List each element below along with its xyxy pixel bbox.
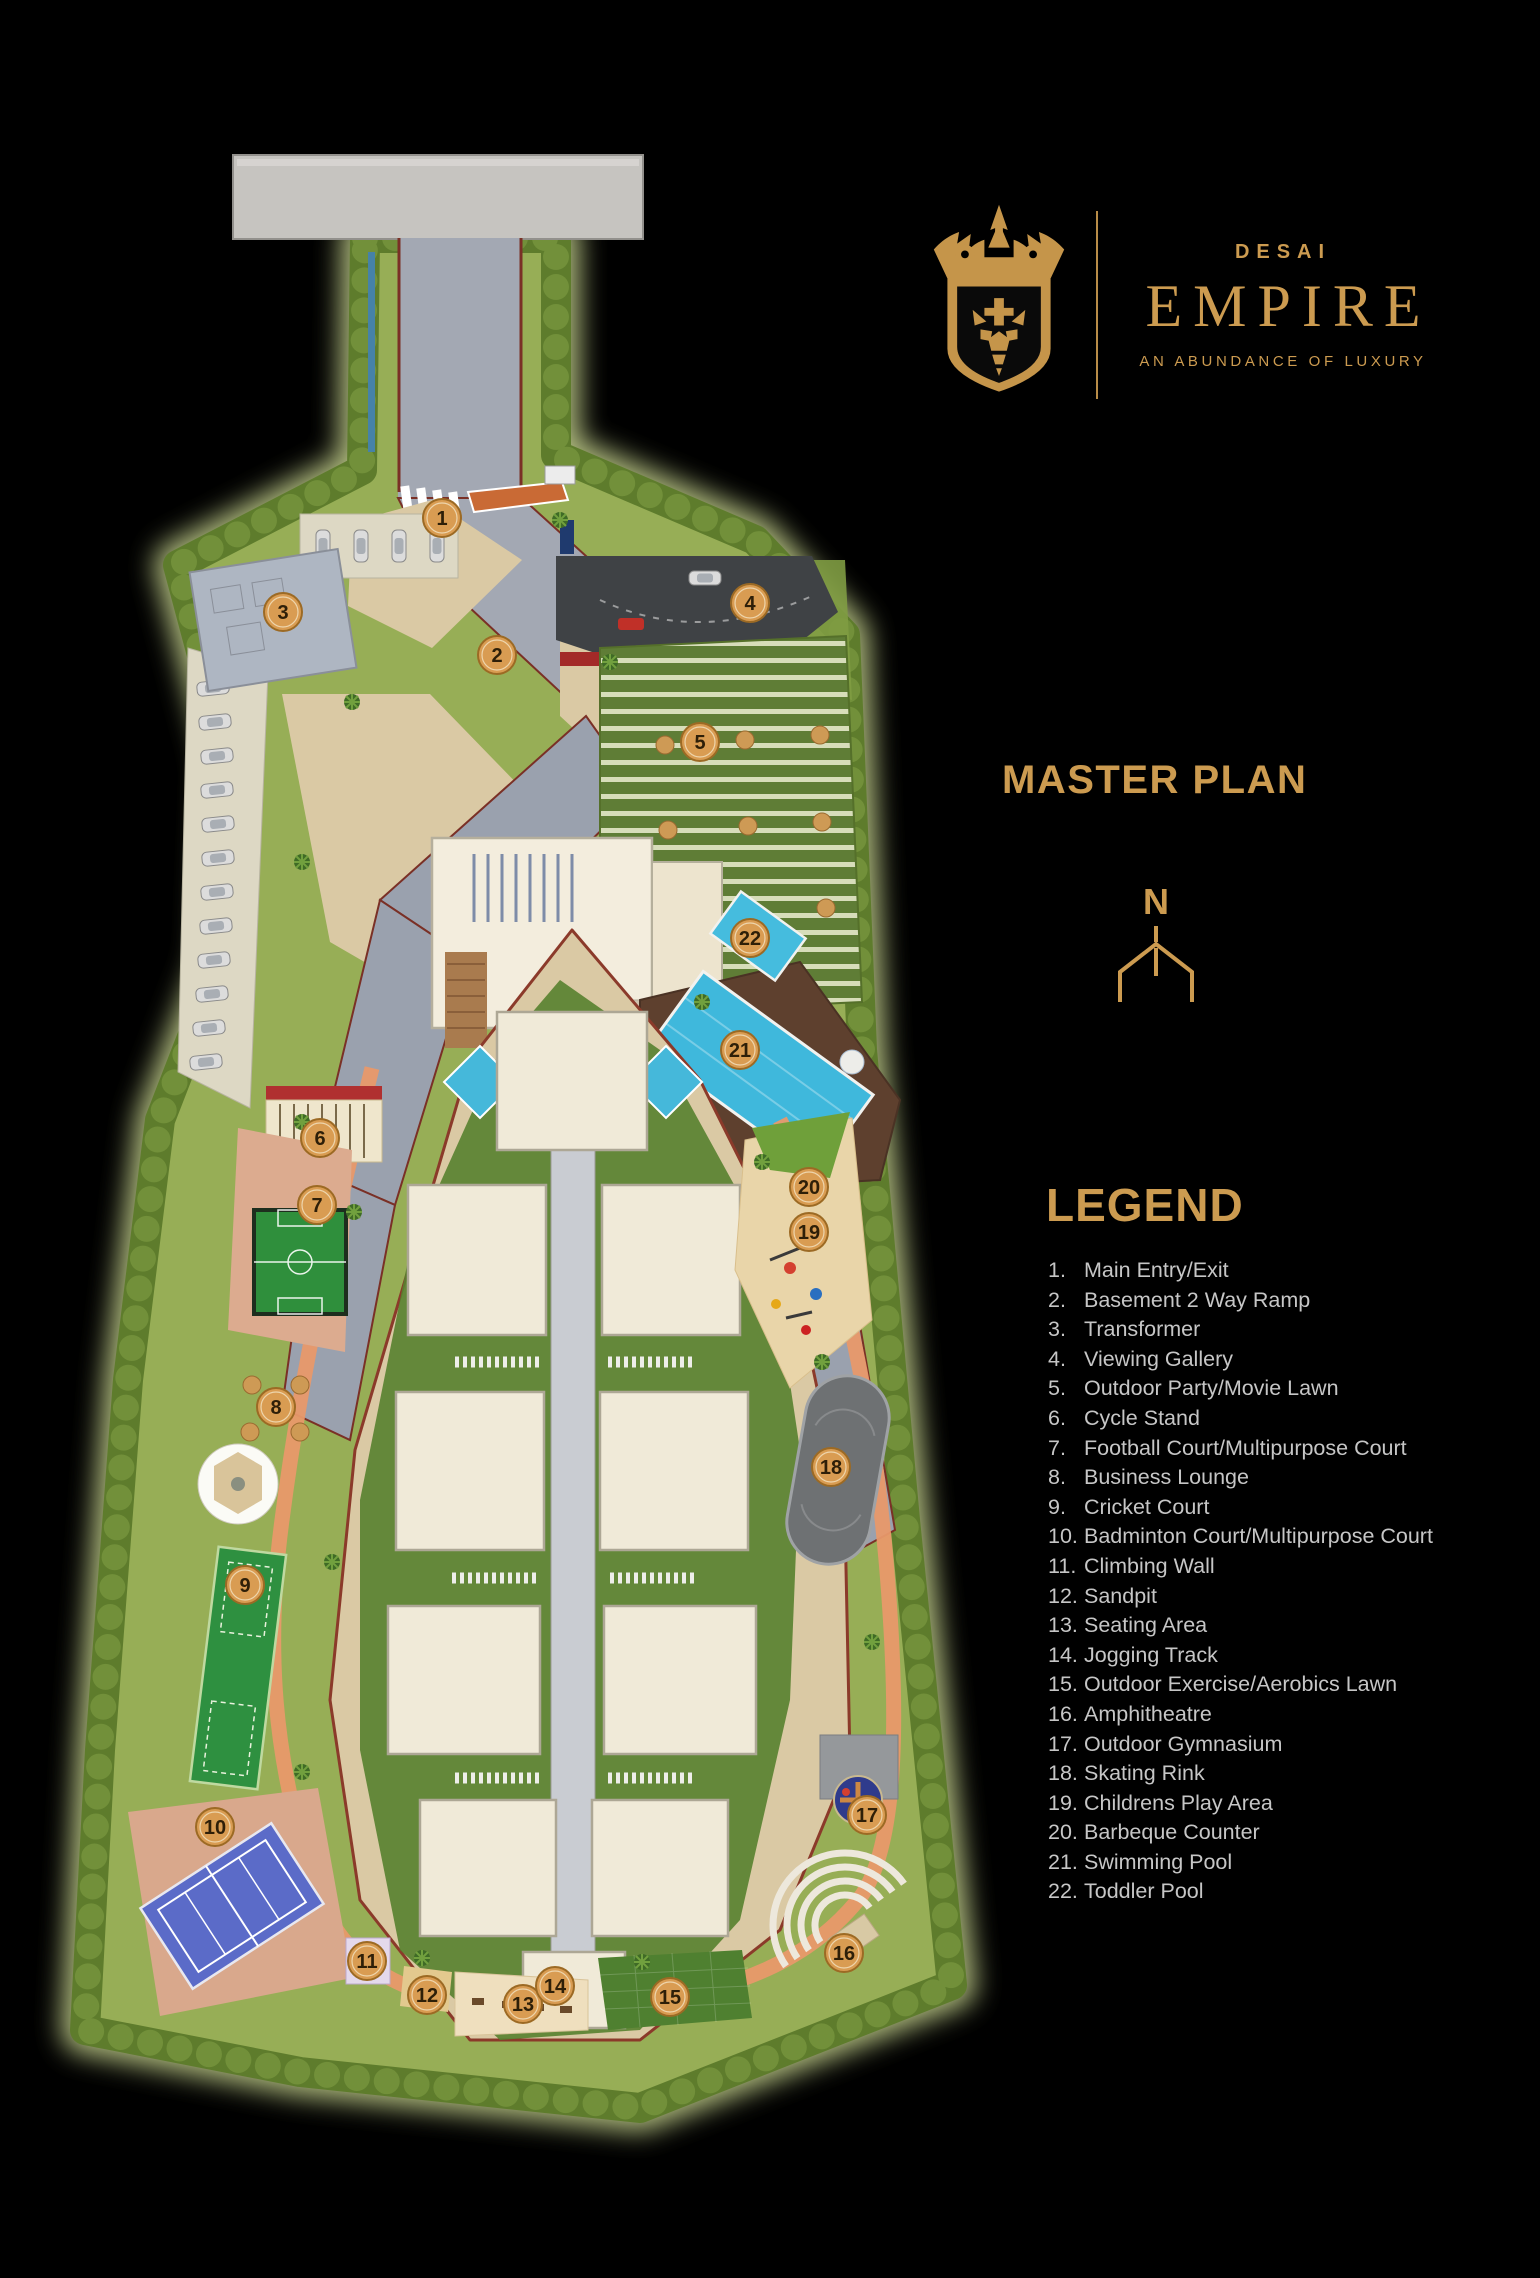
legend-item: 12.Sandpit [1048, 1582, 1516, 1612]
football-court [228, 1128, 352, 1352]
legend-item: 17.Outdoor Gymnasium [1048, 1730, 1516, 1760]
brand-name-top: DESAI [1235, 241, 1331, 264]
map-marker-15: 15 [651, 1978, 689, 2016]
page-title: MASTER PLAN [1002, 758, 1307, 803]
map-marker-9: 9 [226, 1566, 264, 1604]
legend-item-label: Outdoor Exercise/Aerobics Lawn [1084, 1670, 1516, 1700]
building-block [600, 1392, 748, 1550]
legend-item-number: 19. [1048, 1789, 1084, 1819]
legend-item-number: 7. [1048, 1434, 1084, 1464]
map-marker-1: 1 [423, 499, 461, 537]
red-car [618, 618, 644, 630]
svg-text:22: 22 [739, 928, 761, 950]
building-block [396, 1392, 544, 1550]
legend-item-number: 21. [1048, 1848, 1084, 1878]
legend-item: 16.Amphitheatre [1048, 1700, 1516, 1730]
svg-text:20: 20 [798, 1177, 820, 1199]
legend-item: 11.Climbing Wall [1048, 1552, 1516, 1582]
legend-item-number: 14. [1048, 1641, 1084, 1671]
legend-item-number: 2. [1048, 1286, 1084, 1316]
map-marker-18: 18 [812, 1448, 850, 1486]
legend-item-label: Cycle Stand [1084, 1404, 1516, 1434]
legend-item: 2.Basement 2 Way Ramp [1048, 1286, 1516, 1316]
legend-list: 1.Main Entry/Exit2.Basement 2 Way Ramp3.… [1048, 1256, 1516, 1907]
legend-item-number: 16. [1048, 1700, 1084, 1730]
legend-item-label: Football Court/Multipurpose Court [1084, 1434, 1516, 1464]
brand-divider [1096, 211, 1098, 399]
legend-item: 1.Main Entry/Exit [1048, 1256, 1516, 1286]
svg-text:4: 4 [744, 593, 756, 615]
legend-item-number: 4. [1048, 1345, 1084, 1375]
brand-name-main: EMPIRE [1145, 272, 1431, 341]
map-marker-5: 5 [681, 723, 719, 761]
brand: DESAI EMPIRE AN ABUNDANCE OF LUXURY [926, 192, 1442, 418]
legend-item: 18.Skating Rink [1048, 1759, 1516, 1789]
legend-item-label: Outdoor Gymnasium [1084, 1730, 1516, 1760]
building-block [592, 1800, 728, 1936]
map-marker-11: 11 [348, 1942, 386, 1980]
svg-text:2: 2 [491, 645, 502, 667]
svg-text:12: 12 [416, 1985, 438, 2007]
north-arrow-icon [1114, 924, 1198, 1010]
building-block [602, 1185, 740, 1335]
legend-item: 8.Business Lounge [1048, 1463, 1516, 1493]
north-label: N [1106, 884, 1206, 920]
map-marker-22: 22 [731, 919, 769, 957]
svg-text:16: 16 [833, 1943, 855, 1965]
legend-item-label: Basement 2 Way Ramp [1084, 1286, 1516, 1316]
svg-text:17: 17 [856, 1805, 878, 1827]
svg-text:19: 19 [798, 1222, 820, 1244]
svg-text:11: 11 [356, 1951, 377, 1973]
building-block [604, 1606, 756, 1754]
legend: LEGEND 1.Main Entry/Exit2.Basement 2 Way… [1046, 1178, 1516, 1907]
legend-item: 13.Seating Area [1048, 1611, 1516, 1641]
legend-item-label: Skating Rink [1084, 1759, 1516, 1789]
map-marker-4: 4 [731, 584, 769, 622]
legend-item-number: 11. [1048, 1552, 1084, 1582]
svg-text:6: 6 [314, 1128, 325, 1150]
legend-item-number: 1. [1048, 1256, 1084, 1286]
map-marker-6: 6 [301, 1119, 339, 1157]
svg-text:21: 21 [729, 1040, 751, 1062]
map-marker-3: 3 [264, 593, 302, 631]
legend-item-number: 17. [1048, 1730, 1084, 1760]
svg-text:14: 14 [544, 1976, 567, 1998]
svg-text:10: 10 [204, 1817, 226, 1839]
legend-item: 5.Outdoor Party/Movie Lawn [1048, 1374, 1516, 1404]
svg-text:7: 7 [311, 1195, 322, 1217]
legend-item-label: Seating Area [1084, 1611, 1516, 1641]
map-marker-20: 20 [790, 1168, 828, 1206]
legend-item-label: Childrens Play Area [1084, 1789, 1516, 1819]
legend-item: 9.Cricket Court [1048, 1493, 1516, 1523]
map-marker-7: 7 [298, 1186, 336, 1224]
legend-item: 20.Barbeque Counter [1048, 1818, 1516, 1848]
svg-text:18: 18 [820, 1457, 842, 1479]
legend-item-label: Toddler Pool [1084, 1877, 1516, 1907]
legend-item-number: 5. [1048, 1374, 1084, 1404]
legend-item-number: 10. [1048, 1522, 1084, 1552]
legend-item: 3.Transformer [1048, 1315, 1516, 1345]
badminton-court [128, 1788, 352, 2016]
legend-item-number: 3. [1048, 1315, 1084, 1345]
building-block [408, 1185, 546, 1335]
legend-item-number: 20. [1048, 1818, 1084, 1848]
legend-item: 6.Cycle Stand [1048, 1404, 1516, 1434]
main-road [233, 155, 643, 239]
svg-text:15: 15 [659, 1987, 681, 2009]
legend-item: 19.Childrens Play Area [1048, 1789, 1516, 1819]
water-channel [368, 252, 375, 452]
legend-item-label: Swimming Pool [1084, 1848, 1516, 1878]
legend-item: 10.Badminton Court/Multipurpose Court [1048, 1522, 1516, 1552]
legend-item-number: 13. [1048, 1611, 1084, 1641]
svg-text:9: 9 [239, 1575, 250, 1597]
fountain [840, 1050, 864, 1074]
legend-item: 21.Swimming Pool [1048, 1848, 1516, 1878]
legend-item-number: 18. [1048, 1759, 1084, 1789]
svg-text:5: 5 [694, 732, 705, 754]
legend-item-label: Badminton Court/Multipurpose Court [1084, 1522, 1516, 1552]
central-spine [551, 1058, 595, 2010]
building-block [497, 1012, 647, 1150]
legend-item-label: Outdoor Party/Movie Lawn [1084, 1374, 1516, 1404]
legend-item-number: 12. [1048, 1582, 1084, 1612]
map-marker-10: 10 [196, 1808, 234, 1846]
legend-item: 7.Football Court/Multipurpose Court [1048, 1434, 1516, 1464]
legend-item-label: Business Lounge [1084, 1463, 1516, 1493]
legend-item-label: Viewing Gallery [1084, 1345, 1516, 1375]
clubhouse-deck [445, 952, 487, 1048]
legend-item-label: Jogging Track [1084, 1641, 1516, 1671]
legend-item-number: 9. [1048, 1493, 1084, 1523]
map-marker-12: 12 [408, 1976, 446, 2014]
svg-text:13: 13 [512, 1994, 534, 2016]
brand-crest-icon [926, 192, 1072, 418]
legend-item-label: Climbing Wall [1084, 1552, 1516, 1582]
legend-item-label: Sandpit [1084, 1582, 1516, 1612]
map-marker-16: 16 [825, 1934, 863, 1972]
legend-item: 4.Viewing Gallery [1048, 1345, 1516, 1375]
legend-item-number: 15. [1048, 1670, 1084, 1700]
legend-item: 14.Jogging Track [1048, 1641, 1516, 1671]
legend-item: 22.Toddler Pool [1048, 1877, 1516, 1907]
legend-item-label: Barbeque Counter [1084, 1818, 1516, 1848]
legend-item-number: 6. [1048, 1404, 1084, 1434]
legend-item-number: 8. [1048, 1463, 1084, 1493]
svg-text:3: 3 [277, 602, 288, 624]
map-marker-2: 2 [478, 636, 516, 674]
map-marker-19: 19 [790, 1213, 828, 1251]
map-marker-21: 21 [721, 1031, 759, 1069]
legend-item-label: Main Entry/Exit [1084, 1256, 1516, 1286]
map-marker-14: 14 [536, 1967, 574, 2005]
building-block [420, 1800, 556, 1936]
legend-item-number: 22. [1048, 1877, 1084, 1907]
building-block [388, 1606, 540, 1754]
legend-title: LEGEND [1046, 1178, 1516, 1232]
svg-text:8: 8 [270, 1397, 281, 1419]
north-compass: N [1106, 884, 1206, 1010]
legend-item-label: Amphitheatre [1084, 1700, 1516, 1730]
map-marker-8: 8 [257, 1388, 295, 1426]
legend-item: 15.Outdoor Exercise/Aerobics Lawn [1048, 1670, 1516, 1700]
svg-text:1: 1 [436, 508, 447, 530]
legend-item-label: Transformer [1084, 1315, 1516, 1345]
map-marker-17: 17 [848, 1796, 886, 1834]
legend-item-label: Cricket Court [1084, 1493, 1516, 1523]
brand-tagline: AN ABUNDANCE OF LUXURY [1139, 353, 1426, 370]
